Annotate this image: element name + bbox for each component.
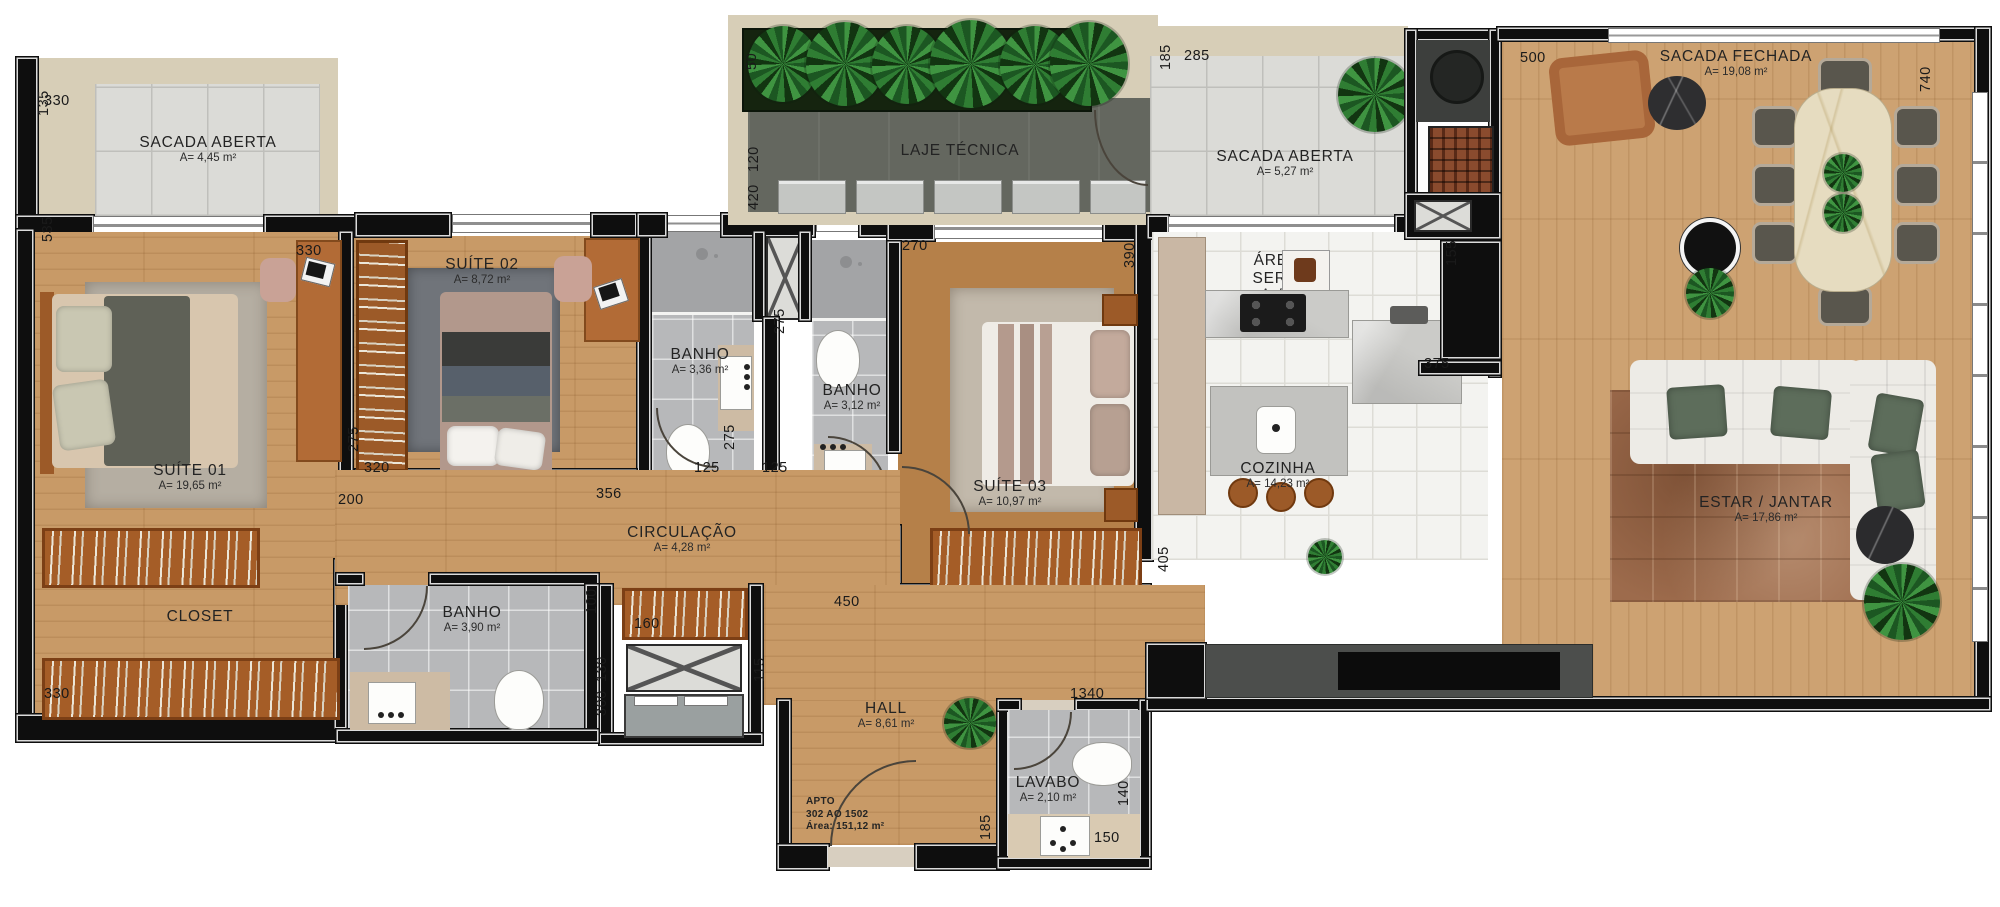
room-area: A= 8,72 m² [445,274,519,287]
room-label-circulacao: CIRCULAÇÃO A= 4,28 m² [627,524,737,555]
side-table-marble [1648,76,1706,130]
suite01-chair [260,258,296,302]
stamp-line3: Área: 151,12 m² [806,821,884,834]
dimension-label: 320 [364,460,390,476]
window-living-top [1608,28,1940,43]
dimension-label: 130 [594,656,610,682]
room-area: A= 2,10 m² [1016,792,1081,805]
wall [1145,696,1992,712]
room-name: CIRCULAÇÃO [627,524,737,542]
window-living-right [1972,92,1988,642]
suite03-nightstand [1104,488,1138,522]
room-name: BANHO [442,604,501,622]
dimension-label: 500 [1520,50,1546,66]
dimension-label: 420 [746,184,762,210]
dimension-label: 275 [346,426,362,452]
wall [776,698,792,858]
dimension-label: 375 [1424,356,1450,372]
dining-chair [1894,106,1940,148]
dimension-label: 200 [338,492,364,508]
vent-shaft [1414,200,1472,232]
suite02-blanket [442,332,550,366]
suite03-blanket [1020,324,1034,484]
room-label-lavabo: LAVABO A= 2,10 m² [1016,774,1081,805]
dimension-label: 330 [296,243,322,259]
ac-condenser [1012,180,1080,214]
dimension-label: 535 [40,216,56,242]
room-label-banho390: BANHO A= 3,90 m² [442,604,501,635]
suite02-chair [554,256,592,302]
room-label-laje: LAJE TÉCNICA [901,142,1020,160]
stamp-line2: 302 AO 1502 [806,809,884,822]
wall [762,316,780,478]
room-area: A= 4,45 m² [98,152,318,165]
shower-head-icon [840,256,852,268]
counter-appliance [1390,306,1428,324]
wall [1145,642,1207,700]
room-area: A= 4,28 m² [627,542,737,555]
dimension-label: 185 [1158,44,1174,70]
dining-chair [1894,222,1940,264]
wall [996,856,1152,870]
wall [335,572,365,586]
wall [798,230,812,322]
sofa-pillow [1770,386,1832,441]
room-area: A= 19,65 m² [153,480,227,493]
wall [354,212,452,238]
room-area: A= 10,97 m² [973,496,1047,509]
dining-chair [1818,286,1872,326]
suite03-pillow [1090,404,1130,476]
room-label-hall: HALL A= 8,61 m² [858,700,915,731]
wall [776,843,830,871]
stair-shaft [626,644,742,692]
suite02-pillow [447,426,499,466]
shower-head-icon [696,248,708,260]
room-area: A= 3,90 m² [442,622,501,635]
dimension-label: 275 [722,424,738,450]
dimension-label: 125 [694,460,720,476]
room-name: SUÍTE 02 [445,256,519,274]
banho336-faucet [744,374,750,380]
room-area: A= 5,27 m² [1165,166,1405,179]
sofa-pillow [1870,449,1926,513]
living-plant-large [1864,564,1940,640]
room-area: A= 3,36 m² [670,364,729,377]
hall-rack [622,588,748,640]
wall [428,572,600,586]
hall-floor-upper [764,585,1205,705]
ac-condenser [856,180,924,214]
room-name: SUÍTE 03 [973,478,1047,496]
banho336-shower [652,232,754,315]
sofa-pillow [1867,392,1924,457]
dimension-label: 450 [834,594,860,610]
room-name: BANHO [822,382,881,400]
dimension-label: 285 [1184,48,1210,64]
wall [752,230,766,322]
table-plant [1824,194,1862,232]
dimension-label: 740 [1918,66,1934,92]
suite03-blanket [1040,324,1052,484]
suite01-pillow [52,378,117,451]
stamp-line1: APTO [806,796,884,809]
suite02-blanket [442,366,550,396]
sofa-pillow [1666,384,1727,440]
dining-chair [1752,106,1798,148]
banho390-toilet [494,670,544,730]
wall [1138,698,1152,870]
coffee-table [1856,506,1914,564]
duct-circle-icon [1430,50,1484,104]
balcony2-plant [1338,58,1412,132]
room-name: ESTAR / JANTAR [1699,494,1833,512]
suite03-rack [930,528,1142,588]
suite02-wardrobe [356,240,408,472]
dimension-label: 50 [744,53,760,70]
room-label-suite03: SUÍTE 03 A= 10,97 m² [973,478,1047,509]
x-mark-icon [628,646,740,690]
dimension-label: 115 [752,657,768,682]
room-label-banho312: BANHO A= 3,12 m² [822,382,881,413]
suite02-pillow [494,427,547,471]
dimension-label: 185 [978,814,994,840]
wall [590,212,638,238]
window-suite02 [452,214,592,233]
room-area: A= 17,86 m² [1699,512,1833,525]
closet-rack-lower [42,658,340,720]
ac-condenser [934,180,1002,214]
room-area: A= 14,23 m² [1240,478,1315,491]
island-faucet [1272,424,1280,432]
apartment-stamp: APTO 302 AO 1502 Área: 151,12 m² [806,796,884,834]
suite03-nightstand [1102,294,1138,326]
dining-chair [1894,164,1940,206]
brick-shaft [1428,126,1494,196]
armchair [1548,49,1657,147]
suite02-blanket [442,396,550,422]
banho312-toilet [816,330,860,388]
room-name: CLOSET [167,608,234,626]
media-plant [1308,540,1342,574]
room-label-estar: ESTAR / JANTAR A= 17,86 m² [1699,494,1833,525]
room-label-sacada2: SACADA ABERTA A= 5,27 m² [1165,148,1405,179]
dimension-label: 135 [36,90,52,116]
table-plant [1824,154,1862,192]
living-plant [1686,268,1734,318]
room-area: A= 8,61 m² [858,718,915,731]
dimension-label: 390 [1122,242,1138,268]
dimension-label: 150 [1094,830,1120,846]
room-name: HALL [858,700,915,718]
kitchen-kettle [1294,258,1316,282]
dimension-label: 270 [902,238,928,254]
planter-plant [1050,22,1128,106]
entry-threshold [828,847,916,867]
dimension-label: 125 [762,460,788,476]
dimension-label: 100 [584,588,600,614]
suite03-pillow [1090,330,1130,398]
dimension-label: 120 [746,146,762,172]
room-name: SACADA ABERTA [1165,148,1405,166]
ac-condenser [1090,180,1146,214]
room-label-suite02: SUÍTE 02 A= 8,72 m² [445,256,519,287]
room-name: BANHO [670,346,729,364]
dimension-label: 140 [1116,780,1132,806]
x-mark-icon [768,238,802,318]
x-mark-icon [1416,202,1470,230]
banho312-shower [812,240,888,321]
window-banho336 [666,215,724,232]
elevator-door [684,696,728,706]
wall [636,212,668,238]
dimension-label: 155 [1444,240,1460,266]
dimension-label: 1340 [1070,686,1104,702]
ac-condenser [778,180,846,214]
dining-chair [1752,222,1798,264]
wall [15,228,35,743]
room-name: SUÍTE 01 [153,462,227,480]
elevator-door [634,696,678,706]
suite01-pillow [56,306,112,372]
lavabo-sink [1040,816,1090,856]
dimension-label: 405 [1156,546,1172,572]
suite03-blanket [998,324,1014,484]
dimension-label: 275 [772,308,788,334]
closet-rack-upper [42,528,260,588]
floor-plan: SACADA ABERTA A= 4,45 m² SUÍTE 01 A= 19,… [0,0,2000,907]
dimension-label: 330 [44,686,70,702]
lavabo-faucet [1060,826,1066,832]
room-name: COZINHA [1240,460,1315,478]
tv [1338,652,1560,690]
room-label-sacada-aberta-1: SACADA ABERTA A= 4,45 m² [98,134,318,165]
room-label-banho336: BANHO A= 3,36 m² [670,346,729,377]
suite01-blanket [104,296,190,466]
room-label-cozinha: COZINHA A= 14,23 m² [1240,460,1315,491]
dimension-label: 160 [634,616,660,632]
dimension-label: 300 [594,690,610,716]
kitchen-cabinet-left [1158,237,1206,515]
cooktop [1240,294,1306,332]
room-label-suite01: SUÍTE 01 A= 19,65 m² [153,462,227,493]
banho390-faucet [388,712,394,718]
wall [335,728,600,744]
wall [886,240,902,454]
dimension-label: 356 [596,486,622,502]
room-name: LAJE TÉCNICA [901,142,1020,160]
room-area: A= 3,12 m² [822,400,881,413]
room-name: SACADA ABERTA [98,134,318,152]
hall-plant [944,698,996,748]
room-name: LAVABO [1016,774,1081,792]
dining-chair [1752,164,1798,206]
room-label-closet: CLOSET [167,608,234,626]
